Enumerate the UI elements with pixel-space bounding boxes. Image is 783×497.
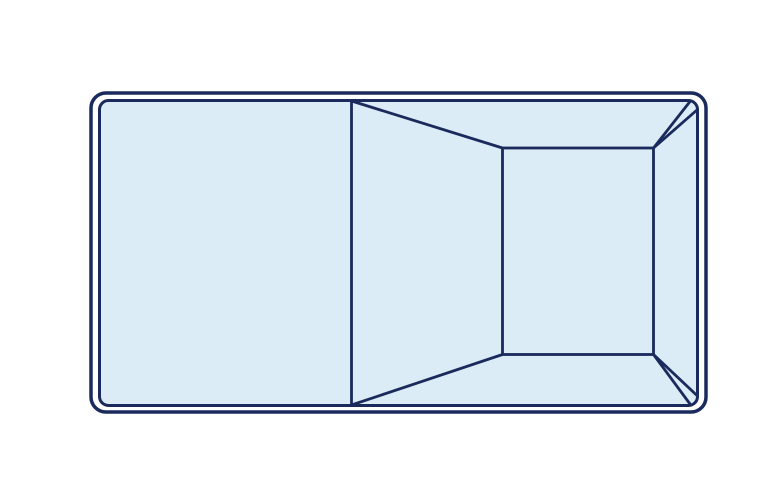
page-background xyxy=(0,0,783,497)
pool-diagram-figure xyxy=(0,0,783,497)
pool-top-view-diagram xyxy=(0,0,783,497)
pool-inner-shell xyxy=(100,101,698,406)
